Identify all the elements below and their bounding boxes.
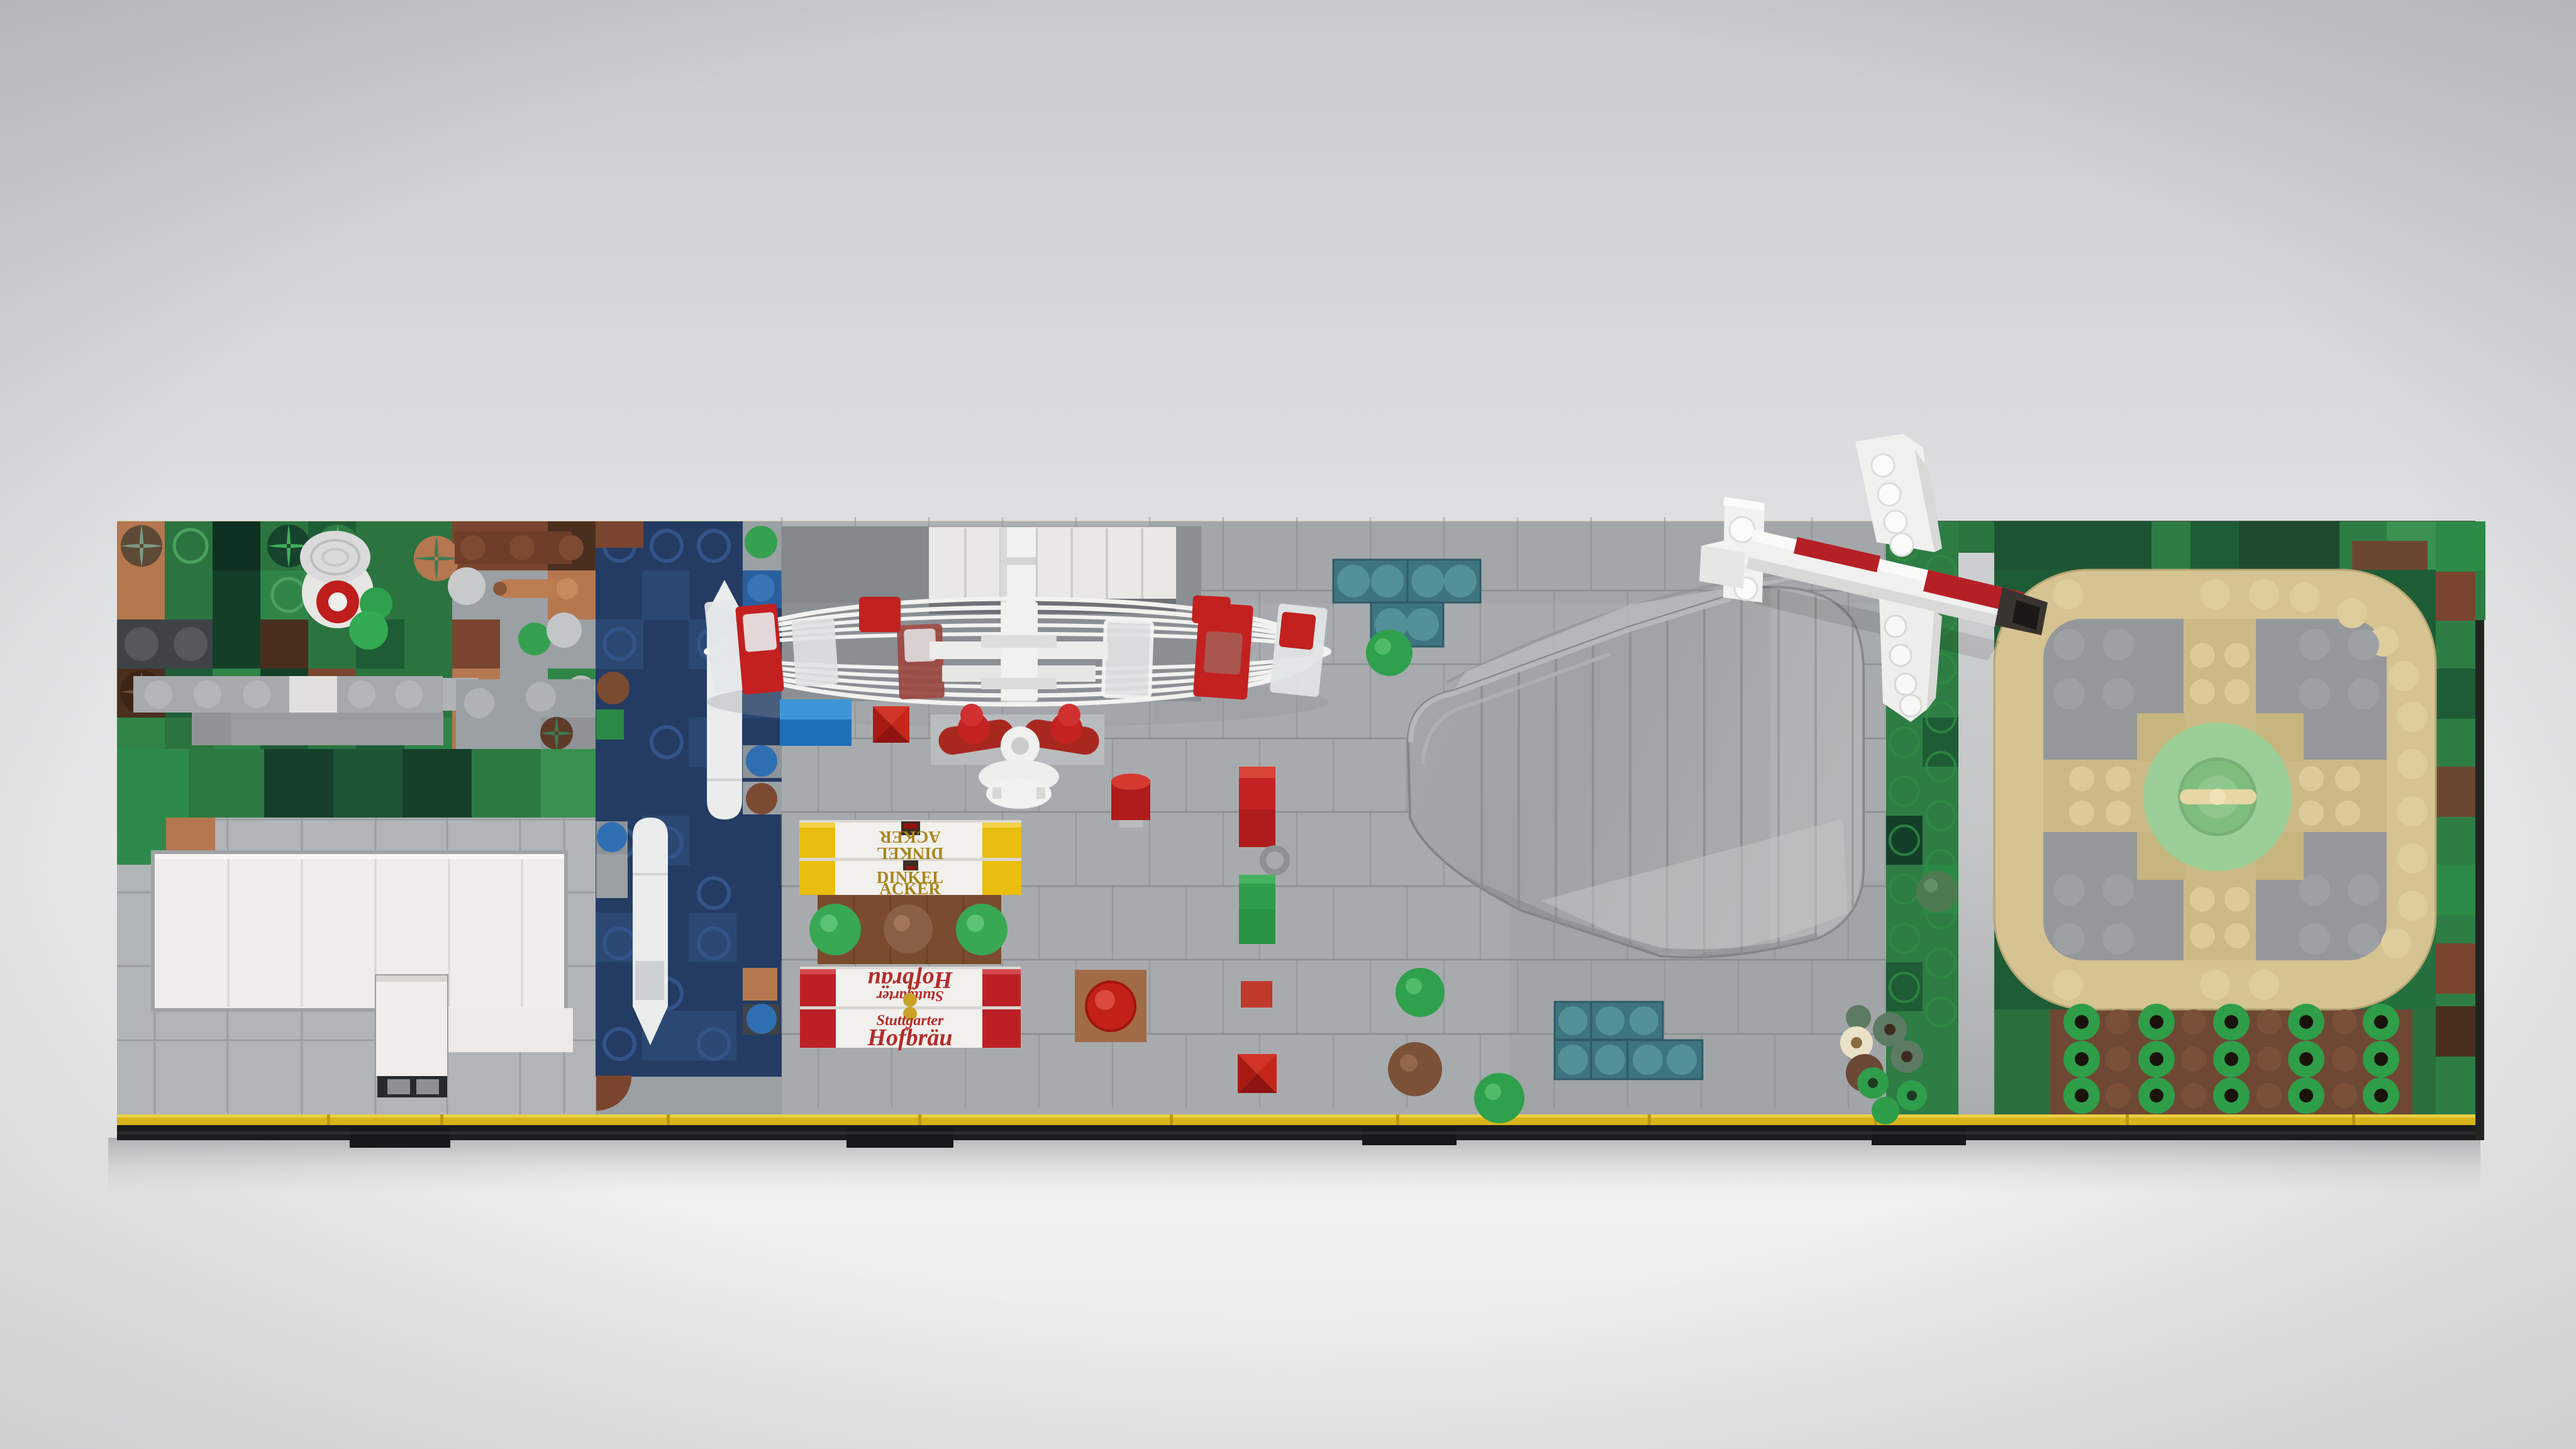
svg-text:Hofbräu: Hofbräu	[867, 1024, 952, 1051]
svg-text:ACKER: ACKER	[879, 828, 941, 847]
svg-text:Hofbräu: Hofbräu	[867, 967, 953, 993]
